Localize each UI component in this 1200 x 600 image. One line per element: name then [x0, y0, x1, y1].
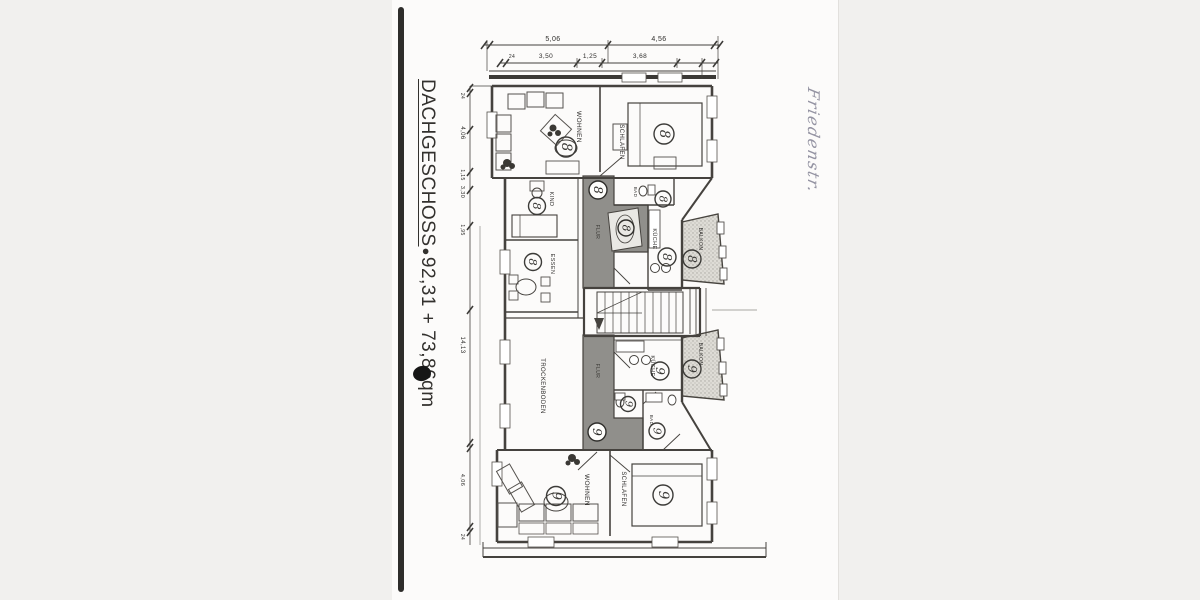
- window: [652, 537, 678, 547]
- svg-text:9: 9: [623, 401, 634, 408]
- balcony-rail: [720, 384, 727, 396]
- svg-text:8: 8: [656, 130, 672, 139]
- stairs: [597, 292, 683, 333]
- room-label-kueche-8: KÜCHE: [651, 228, 658, 249]
- dim-label: 3,68: [633, 53, 647, 60]
- line: [614, 352, 630, 368]
- rect: [648, 185, 655, 195]
- floor-area-text: 92,31 + 73,86qm: [417, 257, 438, 408]
- floor-title-text: DACHGESCHOSS: [417, 79, 438, 247]
- ell: [509, 163, 515, 169]
- room-label-trockenboden: TROCKENBODEN: [539, 358, 545, 413]
- apartment-marker-wohnen-9: 9: [547, 487, 566, 506]
- dim-label: 3,30: [459, 186, 465, 198]
- rect: [541, 277, 550, 286]
- room-label-balkon-8: BALKON: [697, 228, 703, 251]
- rect: [646, 393, 662, 402]
- window: [707, 140, 717, 162]
- window: [622, 73, 646, 82]
- svg-text:9: 9: [549, 492, 564, 500]
- ell: [532, 188, 542, 198]
- room-label-balkon-9: BALKON: [697, 343, 703, 366]
- apartment-marker-flur-8: 8: [589, 181, 607, 199]
- line: [600, 157, 622, 176]
- dim-label: 4,56: [651, 36, 666, 43]
- apartment-marker-bad-9: 9: [649, 423, 665, 439]
- rect: [540, 114, 571, 145]
- svg-text:9: 9: [685, 365, 699, 373]
- floor-plan-drawing: 8888888889999999WOHNENSCHLAFENKINDESSENB…: [0, 0, 1200, 600]
- rect: [616, 341, 644, 352]
- window: [500, 404, 510, 428]
- svg-text:8: 8: [657, 196, 670, 203]
- rect: [498, 503, 517, 527]
- rect: [546, 93, 563, 108]
- ell: [566, 461, 571, 466]
- svg-text:8: 8: [591, 186, 605, 194]
- balcony-rail: [720, 268, 727, 280]
- ell: [630, 356, 639, 365]
- balcony-rail: [719, 362, 726, 374]
- window: [707, 96, 717, 118]
- dim-label: 5,06: [545, 36, 560, 43]
- room-label-schlafen-8: SCHLAFEN: [618, 124, 624, 159]
- ell: [550, 125, 557, 132]
- line: [682, 402, 712, 452]
- ell: [548, 132, 553, 137]
- rect: [508, 94, 525, 109]
- room-label-wohnen-8: WOHNEN: [575, 111, 582, 143]
- balcony-rail: [717, 222, 724, 234]
- title-bullet-dot: ●: [419, 247, 434, 257]
- window: [707, 458, 717, 480]
- stair-arrow: [594, 318, 604, 330]
- line: [578, 452, 597, 470]
- dim-label: 1,25: [583, 53, 597, 60]
- rect: [509, 482, 535, 512]
- room-label-bad-8: BAD: [633, 187, 638, 198]
- svg-text:8: 8: [685, 255, 699, 263]
- apartment-marker-schlafen-8: 8: [654, 124, 674, 144]
- rect: [546, 504, 571, 521]
- window: [528, 537, 554, 547]
- svg-text:8: 8: [526, 258, 540, 265]
- rect: [519, 523, 544, 534]
- rect: [530, 181, 544, 191]
- room-label-essen-8: ESSEN: [549, 254, 555, 275]
- apartment-marker-flur-9: 9: [588, 423, 606, 441]
- ell: [501, 165, 506, 170]
- dim-label: 24: [509, 54, 515, 60]
- ell: [555, 130, 561, 136]
- window: [492, 462, 502, 486]
- svg-text:9: 9: [590, 428, 604, 436]
- handwritten-street-note: Friedenstr.: [801, 85, 823, 230]
- apartment-marker-wc-9: 9: [621, 397, 636, 412]
- room-label-flur-8: FLUR: [594, 225, 600, 240]
- rect: [573, 523, 598, 534]
- rect: [546, 523, 571, 534]
- dim-label: 1,15: [459, 169, 465, 180]
- dim-label: 3,50: [539, 53, 553, 60]
- dim-label: 14,13: [459, 336, 465, 353]
- rect: [509, 291, 518, 300]
- svg-text:9: 9: [651, 428, 664, 435]
- svg-text:8: 8: [620, 225, 633, 232]
- room-label-flur-9: FLUR: [594, 364, 600, 379]
- dim-label: 1,95: [459, 224, 465, 235]
- svg-text:8: 8: [558, 143, 574, 152]
- ell: [516, 279, 536, 295]
- line: [682, 178, 712, 220]
- ell: [574, 459, 580, 465]
- dim-label: 24: [459, 93, 465, 99]
- line: [663, 434, 680, 450]
- window: [500, 340, 510, 364]
- window: [707, 502, 717, 524]
- apartment-marker-kind-8: 8: [529, 198, 546, 215]
- room-label-kind-8: KIND: [548, 192, 554, 207]
- room-label-kueche-9: KÜCHE: [649, 355, 656, 376]
- line: [597, 292, 642, 313]
- balcony-rail: [717, 338, 724, 350]
- balcony-rail: [719, 246, 726, 258]
- room-label-wohnen-9: WOHNEN: [583, 474, 590, 506]
- window: [500, 250, 510, 274]
- room-label-bad-9: BAD: [649, 415, 654, 426]
- svg-text:9: 9: [655, 491, 671, 500]
- rect: [509, 275, 518, 284]
- rect: [496, 134, 511, 151]
- svg-text:8: 8: [660, 253, 674, 261]
- ell: [639, 186, 647, 196]
- rect: [512, 215, 557, 237]
- dim-label: 24: [459, 534, 465, 540]
- rect: [615, 393, 625, 400]
- floor-title: DACHGESCHOSS●92,31 + 73,86qm: [408, 79, 438, 359]
- window: [658, 73, 682, 82]
- dim-label: 4,06: [459, 474, 465, 486]
- rect: [496, 115, 511, 132]
- room-label-schlafen-9: SCHLAFEN: [620, 471, 626, 506]
- scanned-floorplan-document: { "document": { "title": "DACHGESCHOSS",…: [0, 0, 1200, 600]
- ell: [651, 264, 660, 273]
- apartment-marker-schlafen-9: 9: [653, 485, 673, 505]
- apartment-marker-essen-8: 8: [525, 254, 542, 271]
- line: [614, 268, 630, 284]
- svg-text:8: 8: [530, 202, 544, 209]
- dim-label: 4,06: [459, 126, 465, 140]
- rect: [654, 157, 676, 169]
- ell: [668, 395, 676, 405]
- line: [610, 455, 630, 472]
- rect: [573, 504, 598, 521]
- rect: [527, 92, 544, 107]
- rect: [541, 293, 550, 302]
- rect: [546, 161, 579, 174]
